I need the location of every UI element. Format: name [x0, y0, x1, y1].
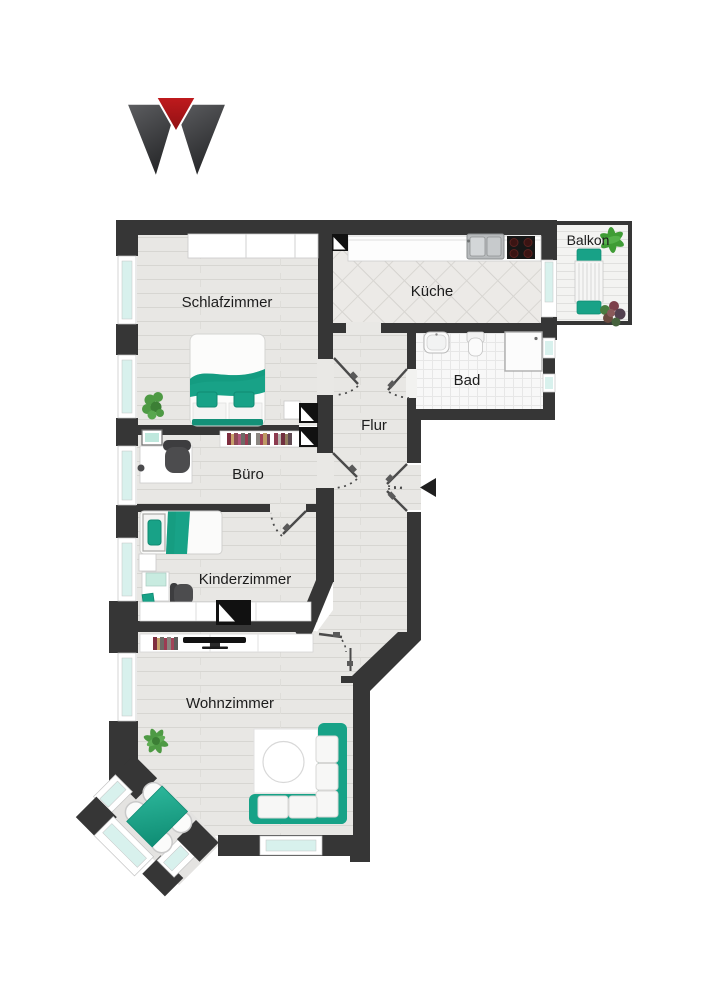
svg-text:Schlafzimmer: Schlafzimmer: [182, 294, 273, 311]
svg-text:Küche: Küche: [411, 283, 454, 300]
svg-text:Wohnzimmer: Wohnzimmer: [186, 695, 274, 712]
svg-text:Kinderzimmer: Kinderzimmer: [199, 571, 292, 588]
svg-text:Flur: Flur: [361, 417, 387, 434]
svg-text:Bad: Bad: [454, 372, 481, 389]
svg-text:Balkon: Balkon: [567, 232, 610, 248]
svg-text:Büro: Büro: [232, 466, 264, 483]
